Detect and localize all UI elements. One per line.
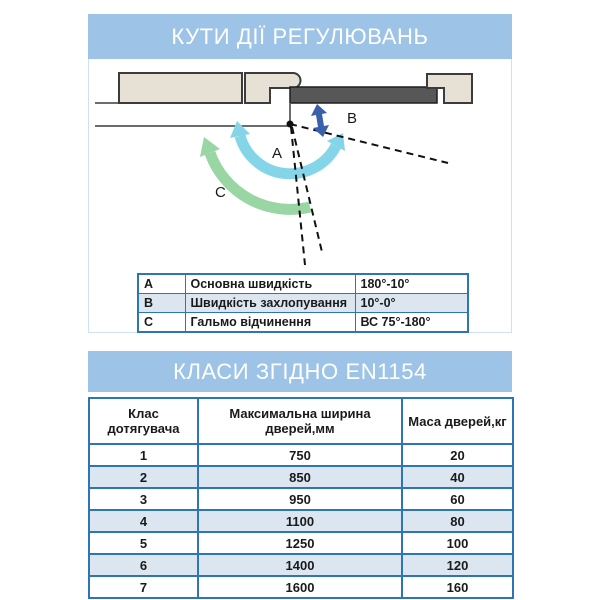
legend-key: C bbox=[138, 313, 185, 333]
cell-mass: 160 bbox=[402, 576, 513, 598]
infographic-page: КУТИ ДІЇ РЕГУЛЮВАНЬ A bbox=[0, 0, 600, 600]
cell-width: 1400 bbox=[198, 554, 402, 576]
table-row: 5 1250 100 bbox=[89, 532, 513, 554]
header-max-width: Максимальна ширина дверей,мм bbox=[198, 398, 402, 444]
table-row: 4 1100 80 bbox=[89, 510, 513, 532]
cell-mass: 120 bbox=[402, 554, 513, 576]
cell-mass: 80 bbox=[402, 510, 513, 532]
dashed-line-closed-1 bbox=[291, 127, 305, 265]
table-row: 2 850 40 bbox=[89, 466, 513, 488]
section2-header-bar: КЛАСИ ЗГІДНО EN1154 bbox=[88, 351, 512, 392]
arc-a-arrowhead-left bbox=[230, 121, 250, 138]
cell-width: 1600 bbox=[198, 576, 402, 598]
legend-table: A Основна швидкість 180°-10° B Швидкість… bbox=[137, 273, 469, 333]
cell-class: 5 bbox=[89, 532, 198, 554]
arc-a-main-speed bbox=[240, 136, 336, 174]
cell-class: 7 bbox=[89, 576, 198, 598]
cell-width: 950 bbox=[198, 488, 402, 510]
legend-row-a: A Основна швидкість 180°-10° bbox=[138, 274, 468, 294]
cell-class: 4 bbox=[89, 510, 198, 532]
cell-class: 6 bbox=[89, 554, 198, 576]
cell-width: 1100 bbox=[198, 510, 402, 532]
table-header-row: Клас дотягувача Максимальна ширина двере… bbox=[89, 398, 513, 444]
legend-value: 10°-0° bbox=[355, 294, 468, 313]
legend-key: A bbox=[138, 274, 185, 294]
cell-mass: 20 bbox=[402, 444, 513, 466]
legend-label: Гальмо відчинення bbox=[185, 313, 355, 333]
legend-value: 180°-10° bbox=[355, 274, 468, 294]
legend-label: Основна швидкість bbox=[185, 274, 355, 294]
cell-class: 2 bbox=[89, 466, 198, 488]
label-a: A bbox=[272, 145, 282, 162]
header-class: Клас дотягувача bbox=[89, 398, 198, 444]
cell-width: 1250 bbox=[198, 532, 402, 554]
en1154-class-table: Клас дотягувача Максимальна ширина двере… bbox=[88, 397, 514, 599]
cell-mass: 40 bbox=[402, 466, 513, 488]
table-row: 7 1600 160 bbox=[89, 576, 513, 598]
table-row: 3 950 60 bbox=[89, 488, 513, 510]
cell-class: 3 bbox=[89, 488, 198, 510]
legend-row-c: C Гальмо відчинення ВС 75°-180° bbox=[138, 313, 468, 333]
cell-class: 1 bbox=[89, 444, 198, 466]
door-closer-bar bbox=[290, 87, 437, 103]
header-mass: Маса дверей,кг bbox=[402, 398, 513, 444]
section2-title: КЛАСИ ЗГІДНО EN1154 bbox=[173, 359, 427, 385]
table-row: 1 750 20 bbox=[89, 444, 513, 466]
cell-width: 750 bbox=[198, 444, 402, 466]
cell-mass: 60 bbox=[402, 488, 513, 510]
dashed-line-latch-angle bbox=[290, 124, 448, 163]
legend-value: ВС 75°-180° bbox=[355, 313, 468, 333]
legend-label: Швидкість захлопування bbox=[185, 294, 355, 313]
wall-section bbox=[119, 73, 242, 103]
cell-mass: 100 bbox=[402, 532, 513, 554]
legend-key: B bbox=[138, 294, 185, 313]
cell-width: 850 bbox=[198, 466, 402, 488]
label-b: B bbox=[347, 110, 357, 127]
legend-row-b: B Швидкість захлопування 10°-0° bbox=[138, 294, 468, 313]
pivot-point bbox=[287, 121, 294, 128]
label-c: C bbox=[215, 184, 226, 201]
table-row: 6 1400 120 bbox=[89, 554, 513, 576]
